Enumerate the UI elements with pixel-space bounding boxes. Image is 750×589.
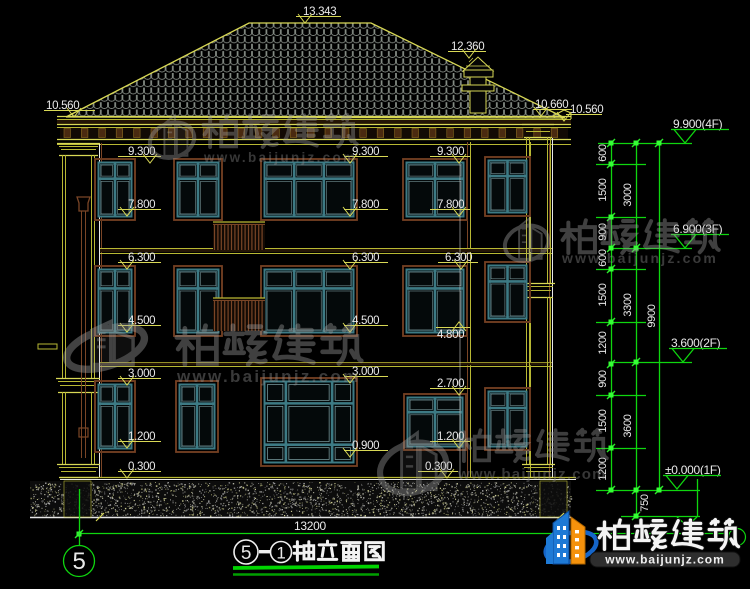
svg-text:600: 600 — [597, 144, 609, 162]
svg-text:www.baijunjz.com: www.baijunjz.com — [604, 553, 725, 567]
svg-text:750: 750 — [639, 494, 651, 512]
svg-text:3000: 3000 — [622, 183, 634, 206]
svg-text:13200: 13200 — [294, 519, 326, 533]
svg-text:900: 900 — [597, 370, 609, 388]
svg-text:1500: 1500 — [597, 283, 609, 306]
svg-text:3300: 3300 — [622, 293, 634, 316]
svg-text:www.baijunjz.com: www.baijunjz.com — [176, 367, 361, 386]
svg-text:9900: 9900 — [646, 304, 658, 327]
svg-text:1200: 1200 — [597, 331, 609, 354]
svg-text:5: 5 — [72, 548, 85, 575]
svg-text:1: 1 — [276, 544, 285, 563]
svg-text:www.baijunjz.com: www.baijunjz.com — [561, 250, 718, 266]
svg-text:1500: 1500 — [597, 178, 609, 201]
svg-text:www.baijunjz.com: www.baijunjz.com — [203, 150, 357, 165]
svg-text:4.800: 4.800 — [437, 329, 464, 341]
svg-text:www.baijunjz.com: www.baijunjz.com — [457, 466, 607, 483]
svg-text:5: 5 — [241, 543, 251, 564]
svg-text:3600: 3600 — [622, 414, 634, 437]
